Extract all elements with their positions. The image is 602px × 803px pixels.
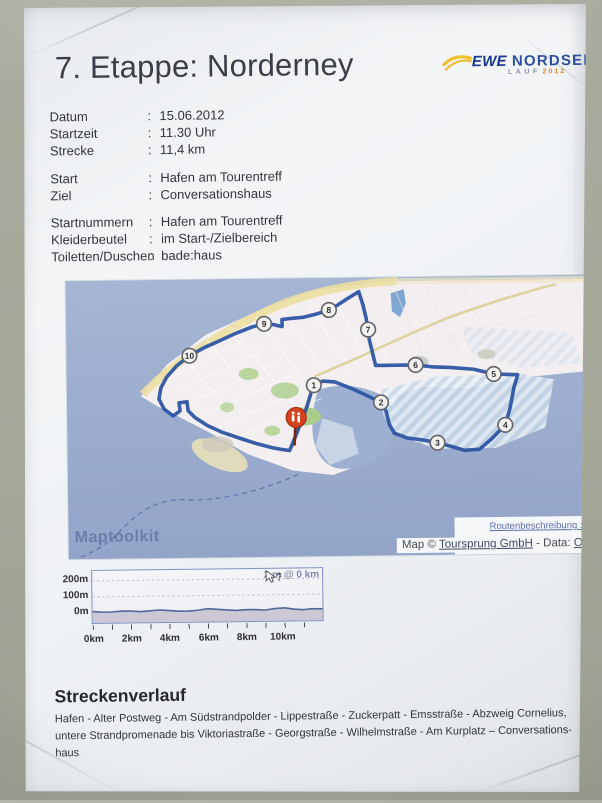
ewe-nordsee-lauf-logo: EWENORDSEE LAUF 2012 <box>442 50 592 86</box>
toursprung-link: Toursprung GmbH <box>439 538 533 551</box>
x-axis-tick-label: 4km <box>153 633 187 644</box>
svg-text:1: 1 <box>311 380 316 390</box>
route-description-heading: Streckenverlauf <box>54 680 602 708</box>
logo-swoosh-icon <box>442 52 472 76</box>
mouse-cursor-icon: ? <box>264 570 281 584</box>
chart-cursor-readout: 2 m @ 0 km ? <box>264 569 319 581</box>
routenbeschreibung-link: Routenbeschreibung : <box>485 519 588 533</box>
info-row-startzeit: Startzeit:11.30 Uhr <box>50 123 225 142</box>
logistics-block: Startnummern:Hafen am Tourentreff Kleide… <box>51 212 283 266</box>
y-axis-tick-label: 100m <box>58 590 88 601</box>
svg-text:7: 7 <box>366 325 371 335</box>
info-row-ziel: Ziel:Conversationshaus <box>50 185 282 205</box>
logo-brand: EWE <box>472 53 507 70</box>
data-source-link: O <box>574 537 583 549</box>
event-facts-block: Datum:15.06.2012 Startzeit:11.30 Uhr Str… <box>49 106 225 159</box>
x-axis-tick-label: 8km <box>230 632 264 643</box>
elevation-profile-chart: 200m 100m 0m 2 m @ 0 km ? <box>61 567 352 649</box>
svg-text:6: 6 <box>413 360 418 370</box>
x-axis-tick-label: 0km <box>77 634 111 645</box>
svg-text:8: 8 <box>326 305 331 315</box>
svg-text:3: 3 <box>435 438 440 448</box>
svg-text:?: ? <box>276 572 281 584</box>
map-watermark: Maptoolkit <box>75 528 160 547</box>
info-row-kleiderbeutel: Kleiderbeutel:im Start-/Zielbereich <box>51 229 283 249</box>
x-axis-labels: 0km 2km 4km 6km 8km 10km <box>92 631 322 648</box>
svg-text:10: 10 <box>185 351 195 361</box>
logo-sub-year: 2012 <box>543 68 567 75</box>
y-axis-tick-label: 0m <box>58 606 88 617</box>
route-description-section: Streckenverlauf Hafen - Alter Postweg - … <box>54 680 602 763</box>
page-title: 7. Etappe: Norderney <box>55 47 354 87</box>
svg-text:4: 4 <box>503 420 508 430</box>
y-axis-tick-label: 200m <box>58 574 88 585</box>
route-map: 12345678910 Maptoolkit Routenbeschreibun… <box>66 275 591 559</box>
elevation-plot-area: 200m 100m 0m 2 m @ 0 km ? <box>91 567 324 624</box>
map-attribution: Map © Toursprung GmbH - Data: O <box>397 536 588 553</box>
logo-name: NORDSEE <box>512 52 595 70</box>
info-row-datum: Datum:15.06.2012 <box>49 106 224 125</box>
route-description-text: Hafen - Alter Postweg - Am Südstrandpold… <box>55 705 602 763</box>
info-row-toiletten: Toiletten/Duschen:bade:haus <box>51 246 283 266</box>
x-axis-tick-label: 6km <box>192 632 226 643</box>
paper-sheet: 7. Etappe: Norderney EWENORDSEE LAUF 201… <box>24 4 586 792</box>
start-finish-block: Start:Hafen am Tourentreff Ziel:Conversa… <box>50 168 282 205</box>
gridline-100m <box>92 594 322 597</box>
x-axis-ticks <box>93 622 323 630</box>
elevation-area-fill <box>93 607 323 623</box>
x-axis-tick-label: 10km <box>266 631 300 642</box>
svg-text:2: 2 <box>379 397 384 407</box>
logo-sub-label: LAUF <box>508 68 541 75</box>
svg-text:9: 9 <box>262 319 267 329</box>
svg-text:5: 5 <box>491 369 496 379</box>
info-row-strecke: Strecke:11,4 km <box>50 140 225 159</box>
x-axis-tick-label: 2km <box>115 633 149 644</box>
photo-background: 7. Etappe: Norderney EWENORDSEE LAUF 201… <box>0 0 602 800</box>
